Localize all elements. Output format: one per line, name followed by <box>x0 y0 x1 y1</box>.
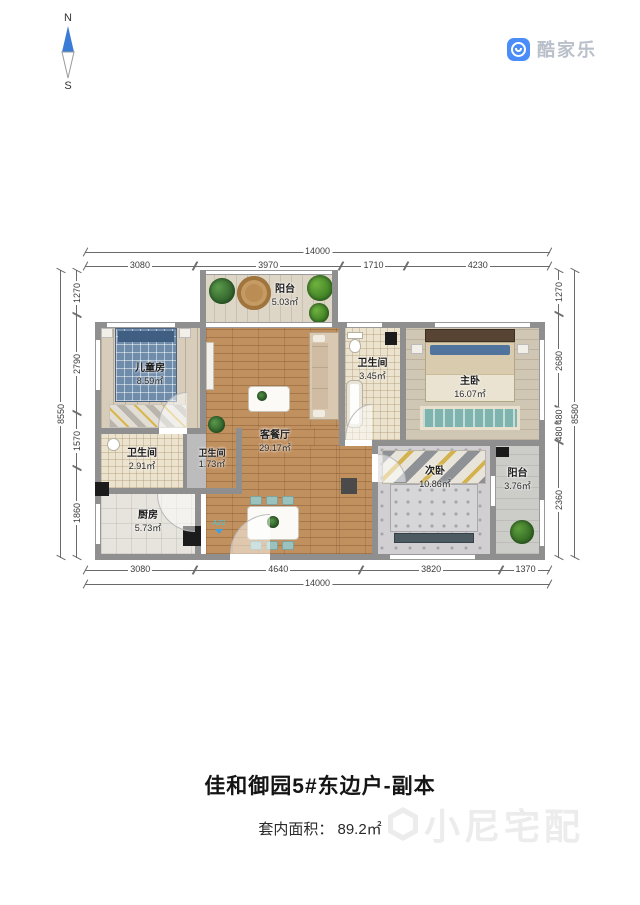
wall <box>95 428 159 434</box>
kujiale-logo: 酷家乐 <box>507 36 597 62</box>
dining-chair <box>282 496 294 505</box>
compass: N S <box>50 12 86 92</box>
wall <box>490 506 496 560</box>
room-label-second-bedroom: 次卧 10.86㎡ <box>400 466 470 490</box>
room-area: 1.73㎡ <box>186 459 238 470</box>
floorplan-page: N S 酷家乐 <box>0 0 640 905</box>
dimension-left-total: 8550 <box>60 270 72 558</box>
room-area: 2.91㎡ <box>108 461 176 472</box>
sofa-pillow <box>313 335 325 342</box>
dimension-top-total: 14000 <box>85 240 550 252</box>
dimension-segment: 480 <box>558 425 571 442</box>
kujiale-brand-text: 酷家乐 <box>537 36 597 62</box>
column-block <box>496 447 509 457</box>
window <box>206 270 332 275</box>
watermark-text: 小尼宅配 <box>424 798 584 850</box>
room-label-balcony-top: 阳台 5.03㎡ <box>250 284 320 308</box>
room-name: 卫生间 <box>358 358 388 369</box>
nightstand <box>179 328 191 338</box>
window <box>95 504 101 544</box>
room-label-kids: 儿童房 8.59㎡ <box>115 363 185 387</box>
plant-icon <box>510 520 534 544</box>
dimension-segment: 1270 <box>76 270 89 315</box>
sofa-cushions <box>312 343 328 409</box>
room-area: 3.45㎡ <box>340 371 405 382</box>
wall <box>200 328 206 434</box>
wall <box>400 328 406 446</box>
room-label-master: 主卧 16.07㎡ <box>435 376 505 400</box>
washer <box>385 332 397 345</box>
plant-icon <box>208 416 225 433</box>
room-label-bathroom-main: 卫生间 3.45㎡ <box>340 358 405 382</box>
watermark-hexagon-icon <box>388 807 418 841</box>
door-direction-icon <box>215 529 223 534</box>
tv-cabinet <box>206 342 214 390</box>
entry-door-label: A22 <box>209 520 229 534</box>
room-hallway <box>339 446 372 554</box>
wall <box>339 440 345 446</box>
dimension-right-segments: 1270 2680 480 480 2360 <box>558 270 570 558</box>
room-area: 5.73㎡ <box>113 523 183 534</box>
wall <box>187 428 206 434</box>
coffee-table <box>248 386 290 412</box>
toilet-icon <box>347 332 363 339</box>
room-name: 厨房 <box>138 510 158 521</box>
wall <box>332 270 338 328</box>
room-label-kitchen: 厨房 5.73㎡ <box>113 510 183 534</box>
compass-north-label: N <box>50 12 86 24</box>
room-label-bathroom-left: 卫生间 2.91㎡ <box>108 448 176 472</box>
room-name: 主卧 <box>460 376 480 387</box>
wall <box>95 554 230 560</box>
dimension-segment: 14000 <box>85 572 550 585</box>
sofa-pillow <box>313 410 325 417</box>
dimension-right-total: 8580 <box>574 270 586 558</box>
dimension-top-segments: 3080 3970 1710 4230 <box>85 254 550 266</box>
watermark: 小尼宅配 <box>388 798 584 850</box>
room-name: 阳台 <box>508 468 528 479</box>
room-name: 卫生间 <box>198 448 225 458</box>
wall <box>339 322 345 446</box>
master-rug <box>420 406 520 430</box>
column-block <box>95 482 109 496</box>
dimension-segment: 8580 <box>574 270 587 558</box>
dimension-segment: 2680 <box>558 314 571 408</box>
window <box>347 322 382 328</box>
toilet-icon <box>349 339 361 353</box>
dimension-segment: 1710 <box>341 254 405 267</box>
window <box>95 340 101 390</box>
dimension-segment: 4230 <box>406 254 550 267</box>
sofa <box>309 332 339 420</box>
sliding-door <box>206 322 332 328</box>
wall <box>372 482 378 560</box>
compass-south-label: S <box>50 80 86 92</box>
entry-door-code: A22 <box>213 520 225 527</box>
dimension-segment: 1570 <box>76 413 89 468</box>
window <box>435 322 530 328</box>
room-area: 3.76㎡ <box>485 481 550 492</box>
window <box>107 322 175 328</box>
dimension-bottom-total: 14000 <box>85 572 550 584</box>
room-name: 阳台 <box>275 284 295 295</box>
wall <box>372 446 378 454</box>
room-label-balcony-right: 阳台 3.76㎡ <box>485 468 550 492</box>
dimension-segment: 2360 <box>558 442 571 558</box>
window <box>539 340 545 420</box>
room-area: 16.07㎡ <box>435 389 505 400</box>
room-name: 客餐厅 <box>260 430 290 441</box>
nightstand <box>411 344 423 354</box>
dimension-segment: 3970 <box>195 254 342 267</box>
second-bed <box>390 484 478 532</box>
cabinet-block <box>341 478 357 494</box>
nightstand <box>517 344 529 354</box>
wall <box>200 270 206 328</box>
room-area: 5.03㎡ <box>250 297 320 308</box>
wall <box>372 440 545 446</box>
master-headboard-cabinet <box>425 329 515 342</box>
bed-bench <box>394 533 474 543</box>
dimension-segment: 3080 <box>85 254 195 267</box>
dimension-left-segments: 1270 2790 1570 1860 <box>76 270 88 558</box>
master-bed-pillows <box>430 345 510 355</box>
dimension-segment: 2790 <box>76 315 89 413</box>
room-name: 次卧 <box>425 466 445 477</box>
room-area: 10.86㎡ <box>400 479 470 490</box>
dimension-segment: 14000 <box>85 240 550 253</box>
dimension-segment: 1860 <box>76 468 89 558</box>
room-label-living: 客餐厅 29.17㎡ <box>240 430 310 454</box>
floor-plan: A22 阳台 5.03㎡ 儿童房 8.59㎡ 卫生间 3.45㎡ 主卧 16.0… <box>95 270 545 560</box>
dining-chair <box>266 496 278 505</box>
window <box>539 500 545 546</box>
room-area: 29.17㎡ <box>240 443 310 454</box>
kids-bed-pillows <box>118 331 174 342</box>
compass-needle-icon <box>59 24 77 80</box>
dining-chair <box>282 541 294 550</box>
kujiale-shield-icon <box>507 38 530 61</box>
plan-title: 佳和御园5#东边户-副本 <box>0 770 640 800</box>
room-name: 儿童房 <box>135 363 165 374</box>
plant-icon <box>209 278 235 304</box>
window <box>390 554 475 560</box>
room-label-bathroom-small: 卫生间 1.73㎡ <box>186 448 238 471</box>
dining-chair <box>250 496 262 505</box>
dimension-segment: 1270 <box>558 270 571 314</box>
room-name: 卫生间 <box>127 448 157 459</box>
plant-icon <box>257 391 267 401</box>
nightstand <box>101 328 113 338</box>
room-area: 8.59㎡ <box>115 376 185 387</box>
